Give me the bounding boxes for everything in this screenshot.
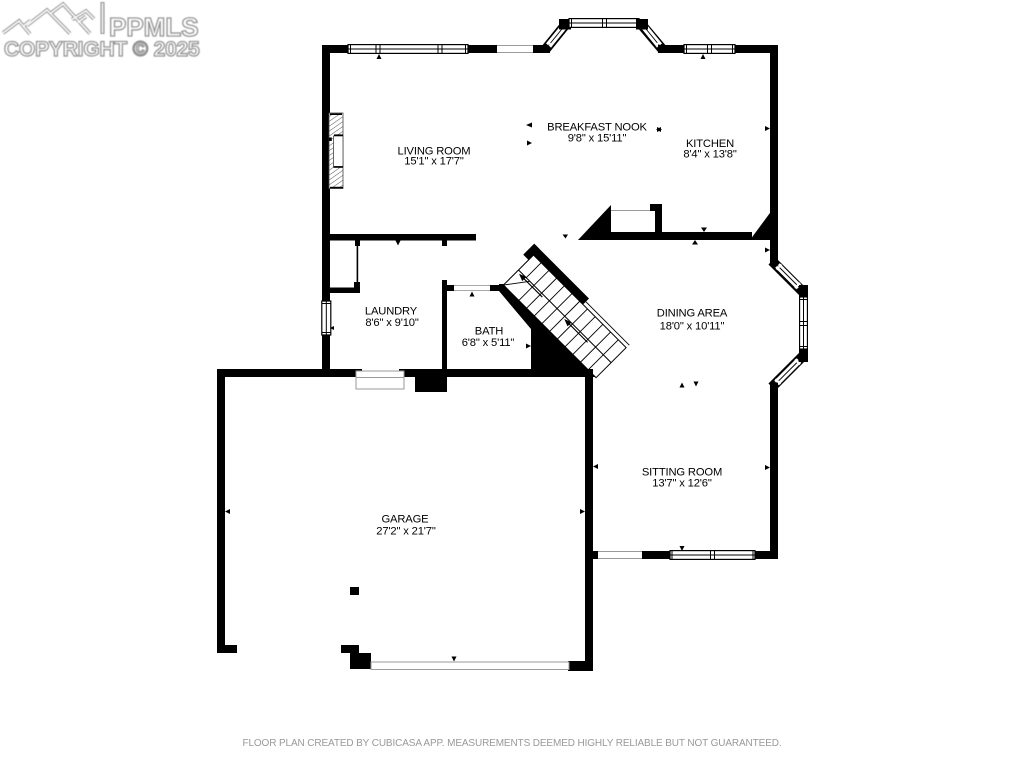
- svg-text:8'4" x 13'8": 8'4" x 13'8": [683, 149, 737, 161]
- svg-text:DINING AREA: DINING AREA: [657, 308, 728, 320]
- svg-text:GARAGE: GARAGE: [382, 514, 429, 526]
- svg-text:FLOOR PLAN CREATED BY CUBICASA: FLOOR PLAN CREATED BY CUBICASA APP. MEAS…: [242, 738, 781, 749]
- svg-text:BATH: BATH: [475, 326, 503, 338]
- svg-text:9'8" x 15'11": 9'8" x 15'11": [568, 133, 627, 145]
- svg-text:6'8" x 5'11": 6'8" x 5'11": [462, 337, 515, 349]
- svg-text:LAUNDRY: LAUNDRY: [365, 306, 418, 318]
- svg-text:13'7" x 12'6": 13'7" x 12'6": [652, 477, 712, 489]
- svg-text:15'1" x 17'7": 15'1" x 17'7": [404, 155, 464, 167]
- svg-text:27'2" x 21'7": 27'2" x 21'7": [376, 526, 436, 538]
- svg-text:18'0" x 10'11": 18'0" x 10'11": [660, 321, 725, 333]
- svg-text:COPYRIGHT © 2025: COPYRIGHT © 2025: [4, 38, 200, 61]
- svg-text:8'6" x 9'10": 8'6" x 9'10": [365, 317, 419, 329]
